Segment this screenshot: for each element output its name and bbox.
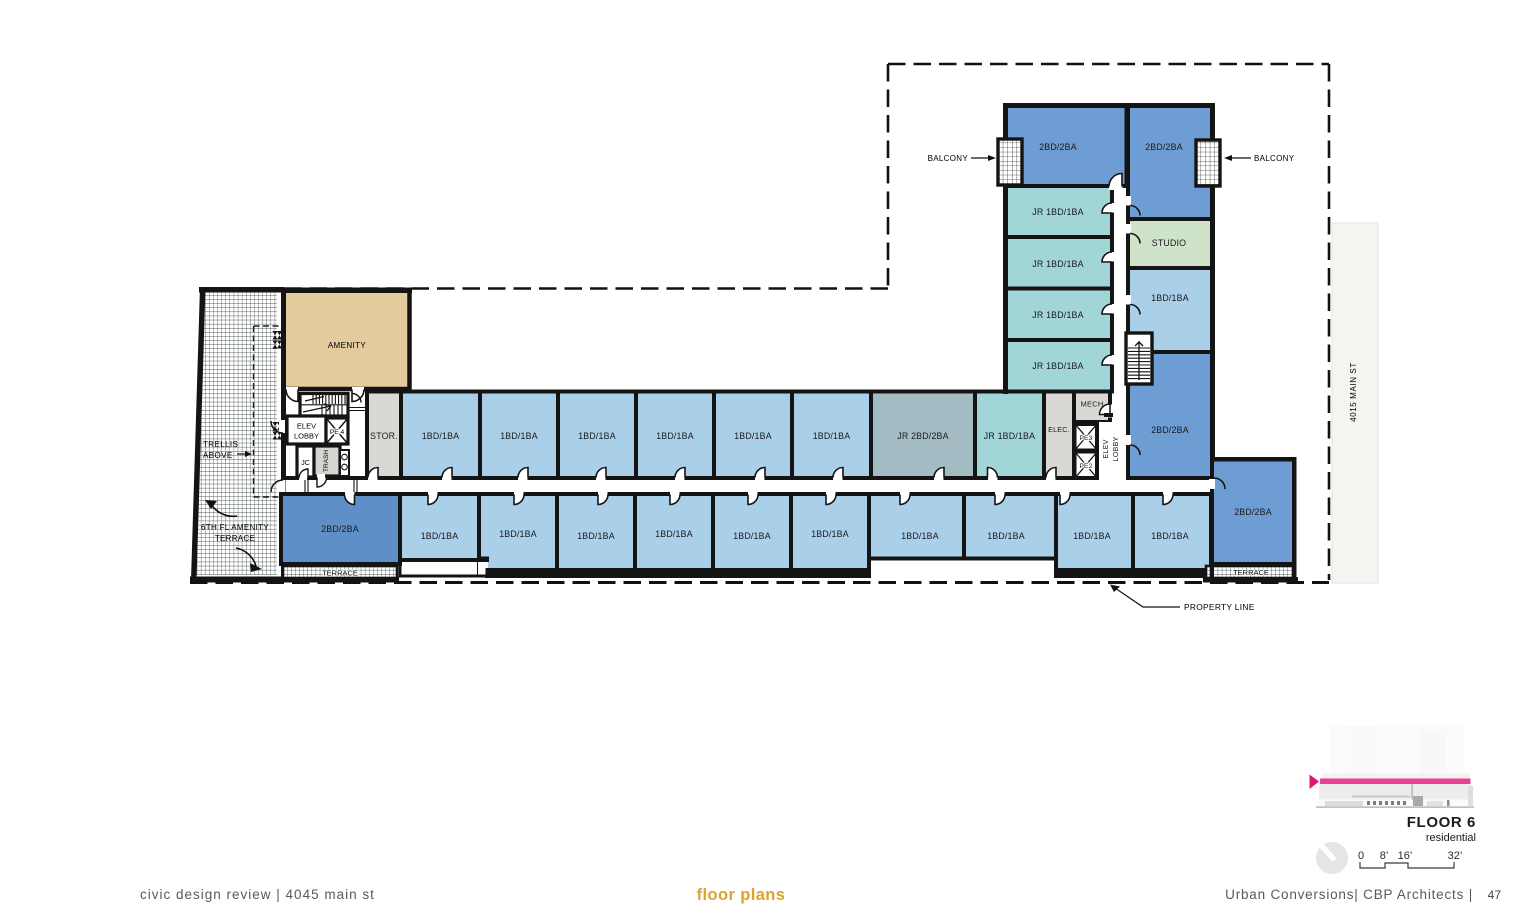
svg-text:JC: JC: [301, 460, 310, 467]
svg-text:TERRACE: TERRACE: [215, 534, 255, 543]
svg-text:civic design review | 4045 mai: civic design review | 4045 main st: [140, 887, 375, 902]
svg-text:16’: 16’: [1398, 850, 1413, 862]
svg-text:PE3: PE3: [1079, 435, 1092, 442]
svg-text:LOBBY: LOBBY: [294, 432, 319, 441]
svg-text:JR 2BD/2BA: JR 2BD/2BA: [897, 431, 948, 441]
svg-text:PE 4: PE 4: [330, 429, 345, 436]
svg-text:1BD/1BA: 1BD/1BA: [1073, 531, 1111, 541]
svg-text:4015 MAIN ST: 4015 MAIN ST: [1349, 362, 1358, 422]
svg-text:1BD/1BA: 1BD/1BA: [499, 529, 537, 539]
svg-text:2BD/2BA: 2BD/2BA: [1145, 142, 1183, 152]
svg-text:1BD/1BA: 1BD/1BA: [421, 531, 459, 541]
svg-text:TRELLIS: TRELLIS: [203, 440, 238, 449]
svg-text:1BD/1BA: 1BD/1BA: [1151, 531, 1189, 541]
svg-text:FLOOR 6: FLOOR 6: [1407, 814, 1476, 831]
svg-text:1BD/1BA: 1BD/1BA: [500, 431, 538, 441]
svg-text:JR 1BD/1BA: JR 1BD/1BA: [1032, 361, 1083, 371]
svg-text:1BD/1BA: 1BD/1BA: [901, 531, 939, 541]
svg-text:JR 1BD/1BA: JR 1BD/1BA: [1032, 259, 1083, 269]
svg-text:1BD/1BA: 1BD/1BA: [656, 431, 694, 441]
svg-text:2BD/2BA: 2BD/2BA: [1151, 425, 1189, 435]
svg-text:1BD/1BA: 1BD/1BA: [733, 531, 771, 541]
svg-text:LOBBY: LOBBY: [1111, 437, 1120, 462]
svg-text:PROPERTY LINE: PROPERTY LINE: [1184, 602, 1255, 612]
svg-text:2BD/2BA: 2BD/2BA: [1039, 142, 1077, 152]
svg-text:JR 1BD/1BA: JR 1BD/1BA: [1032, 310, 1083, 320]
svg-text:1BD/1BA: 1BD/1BA: [655, 529, 693, 539]
svg-text:MECH: MECH: [1081, 400, 1104, 409]
svg-text:ABOVE: ABOVE: [203, 451, 233, 460]
svg-text:1BD/1BA: 1BD/1BA: [1151, 293, 1189, 303]
svg-text:AMENITY: AMENITY: [328, 341, 367, 350]
svg-text:STUDIO: STUDIO: [1152, 238, 1186, 248]
svg-text:6TH FL AMENITY: 6TH FL AMENITY: [201, 523, 269, 532]
svg-text:ELEV: ELEV: [297, 422, 316, 431]
svg-text:1BD/1BA: 1BD/1BA: [422, 431, 460, 441]
svg-text:PE2: PE2: [1079, 463, 1092, 470]
svg-text:JR 1BD/1BA: JR 1BD/1BA: [1032, 207, 1083, 217]
svg-text:Urban Conversions| CBP Archite: Urban Conversions| CBP Architects |: [1225, 887, 1473, 902]
svg-text:1BD/1BA: 1BD/1BA: [813, 431, 851, 441]
svg-text:TRASH: TRASH: [323, 450, 330, 472]
svg-text:2BD/2BA: 2BD/2BA: [321, 524, 359, 534]
svg-text:BALCONY: BALCONY: [928, 154, 969, 163]
svg-text:floor plans: floor plans: [697, 886, 786, 904]
svg-text:TERRACE: TERRACE: [322, 569, 358, 578]
svg-text:1BD/1BA: 1BD/1BA: [987, 531, 1025, 541]
svg-text:ELEC.: ELEC.: [1048, 425, 1070, 434]
svg-text:BALCONY: BALCONY: [1254, 154, 1295, 163]
svg-text:2BD/2BA: 2BD/2BA: [1234, 507, 1272, 517]
svg-text:1BD/1BA: 1BD/1BA: [578, 431, 616, 441]
svg-text:STOR.: STOR.: [370, 431, 398, 441]
svg-text:1BD/1BA: 1BD/1BA: [734, 431, 772, 441]
svg-text:0: 0: [1358, 850, 1364, 862]
svg-text:JR 1BD/1BA: JR 1BD/1BA: [984, 431, 1035, 441]
svg-text:1BD/1BA: 1BD/1BA: [577, 531, 615, 541]
svg-text:ELEV: ELEV: [1101, 439, 1110, 458]
svg-text:1BD/1BA: 1BD/1BA: [811, 529, 849, 539]
svg-text:residential: residential: [1426, 832, 1476, 844]
svg-text:8’: 8’: [1380, 850, 1389, 862]
svg-text:32’: 32’: [1448, 850, 1463, 862]
svg-text:TERRACE: TERRACE: [1233, 568, 1269, 577]
svg-text:47: 47: [1488, 888, 1502, 902]
